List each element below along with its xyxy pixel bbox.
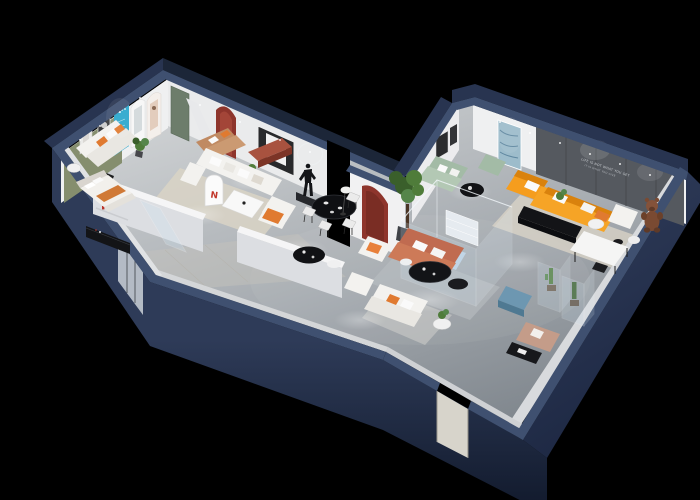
white-round-table — [327, 260, 341, 268]
wall-glow — [106, 98, 134, 138]
table-bowl — [468, 186, 472, 190]
white-round-table — [628, 236, 640, 244]
black-oval-table — [293, 247, 325, 264]
dish — [338, 207, 342, 210]
white-round-table — [400, 259, 412, 266]
arch-logo-letter: N — [210, 191, 219, 202]
showroom-scene: LIFE IS NOT WHAT YOU GET IT IS WHAT YOU … — [0, 0, 700, 500]
round-side-table — [67, 164, 81, 173]
white-round-table — [588, 219, 604, 229]
dish — [324, 202, 329, 205]
notch-void-doorway — [327, 140, 350, 247]
console-decor — [99, 231, 101, 233]
console-decor-red — [95, 229, 97, 231]
green-door — [171, 86, 189, 141]
floor-lamp-base — [340, 213, 346, 216]
black-oval-side-table — [448, 279, 468, 290]
floorplan-render: LIFE IS NOT WHAT YOU GET IT IS WHAT YOU … — [0, 0, 700, 500]
floor-lamp-shade — [341, 187, 352, 194]
dish — [330, 211, 334, 214]
poster-figure-head — [152, 106, 156, 110]
wall-glow — [498, 117, 522, 153]
round-table — [433, 319, 451, 330]
poster-woman — [150, 99, 158, 131]
niche-poster — [134, 105, 142, 135]
table-decor — [242, 201, 245, 204]
